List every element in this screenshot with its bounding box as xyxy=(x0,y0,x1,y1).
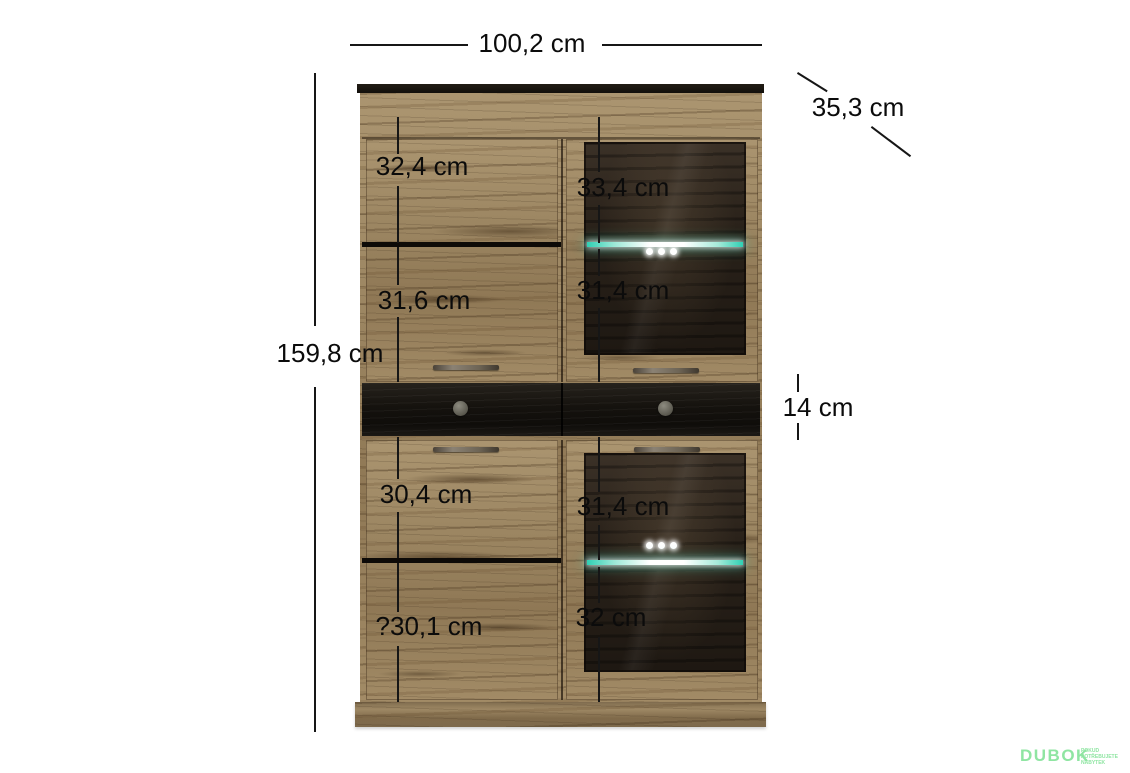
upper-door-gap xyxy=(561,139,563,382)
left-sec1-label: 32,4 cm xyxy=(376,153,469,180)
drawer-gap xyxy=(561,383,563,436)
drawer-dim-label: 14 cm xyxy=(783,394,854,421)
width-dim-line-right xyxy=(602,44,762,46)
right-sec4-line-a xyxy=(598,567,600,603)
led-dot xyxy=(670,248,677,255)
led-dot xyxy=(658,542,665,549)
watermark-brand: DUBOK xyxy=(1020,746,1090,766)
left-sec2-label: 31,6 cm xyxy=(378,287,471,314)
led-dot xyxy=(658,248,665,255)
left-sec4-line-b xyxy=(397,646,399,702)
left-sec2-line-b xyxy=(397,317,399,382)
drawer-dim-tick-bottom xyxy=(797,423,799,440)
right-sec4-label: 32 cm xyxy=(576,604,647,631)
right-sec1-label: 33,4 cm xyxy=(577,174,670,201)
watermark-tagline-line: NÁBYTEK xyxy=(1081,761,1118,767)
left-sec3-line-a xyxy=(397,437,399,479)
led-dot xyxy=(646,542,653,549)
left-drawer-knob xyxy=(453,401,468,416)
left-sec1-line-b xyxy=(397,186,399,243)
watermark-tagline: POKUD POTŘEBUJETE NÁBYTEK xyxy=(1081,749,1118,766)
width-dim-label: 100,2 cm xyxy=(479,30,586,57)
product-dimension-diagram: 100,2 cm 35,3 cm 159,8 cm 14 cm 32,4 cm … xyxy=(0,0,1130,773)
left-sec2-line-a xyxy=(397,247,399,285)
lower-led-shelf xyxy=(587,560,743,565)
lower-left-shelf-line xyxy=(362,558,561,563)
led-dot xyxy=(670,542,677,549)
right-drawer-knob xyxy=(658,401,673,416)
depth-dim-line-lower xyxy=(871,126,911,157)
right-sec1-line-b xyxy=(598,205,600,243)
left-sec3-line-b xyxy=(397,512,399,558)
base-plinth xyxy=(355,702,766,727)
lower-led-lights xyxy=(646,542,677,549)
drawer-dim-tick-top xyxy=(797,374,799,392)
right-sec4-line-b xyxy=(598,637,600,702)
upper-left-shelf-line xyxy=(362,242,561,247)
right-sec3-line-a xyxy=(598,437,600,492)
lower-right-door-handle xyxy=(634,447,700,452)
left-sec4-label: ?30,1 cm xyxy=(376,613,483,640)
height-dim-label: 159,8 cm xyxy=(277,340,384,367)
led-dot xyxy=(646,248,653,255)
lower-glass-panel xyxy=(584,453,746,672)
left-sec3-label: 30,4 cm xyxy=(380,481,473,508)
height-dim-line-top xyxy=(314,73,316,326)
lower-door-gap xyxy=(561,440,563,700)
right-sec2-label: 31,4 cm xyxy=(577,277,670,304)
left-sec4-line-a xyxy=(397,563,399,612)
right-sec3-line-b xyxy=(598,525,600,560)
right-sec2-line-a xyxy=(598,249,600,276)
right-sec3-label: 31,4 cm xyxy=(577,493,670,520)
right-sec2-line-b xyxy=(598,308,600,382)
cabinet-top-edge xyxy=(357,84,764,93)
left-sec1-line-a xyxy=(397,117,399,154)
depth-dim-label: 35,3 cm xyxy=(812,94,905,121)
upper-left-door-handle xyxy=(433,365,499,370)
depth-dim-line-upper xyxy=(797,72,828,92)
right-sec1-line-a xyxy=(598,117,600,172)
height-dim-line-bottom xyxy=(314,387,316,732)
upper-right-door-handle xyxy=(633,368,699,373)
lower-left-door-handle xyxy=(433,447,499,452)
width-dim-line-left xyxy=(350,44,468,46)
upper-led-lights xyxy=(646,248,677,255)
upper-led-shelf xyxy=(587,242,743,247)
